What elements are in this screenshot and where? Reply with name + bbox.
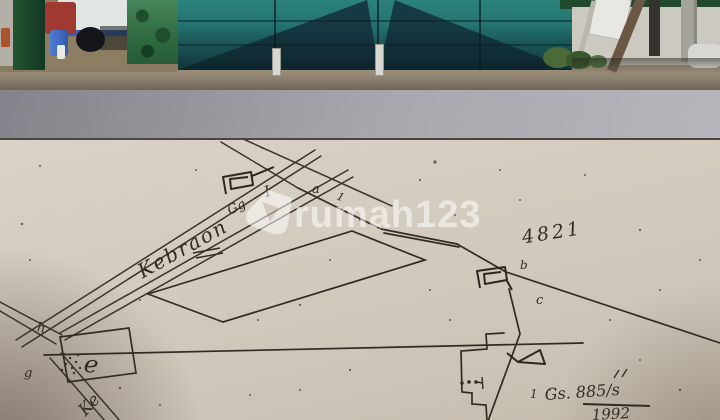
site-plan-drawing: Kebraon Gg I Ke a 1 b c e h g 4821 1 Gs.… — [0, 140, 720, 420]
listing-image: Kebraon Gg I Ke a 1 b c e h g 4821 1 Gs.… — [0, 0, 720, 420]
point-c: c — [536, 293, 544, 308]
dark-post — [649, 0, 660, 56]
survey-year: 1992 — [591, 404, 630, 420]
watermark-text: rumah123 — [294, 194, 482, 236]
gate-rail-top — [178, 20, 572, 22]
point-e: e — [82, 350, 100, 380]
street-photo — [0, 0, 720, 138]
dashed-tick — [461, 377, 483, 389]
ditto-marks — [614, 369, 627, 378]
truck-wheel — [76, 27, 105, 52]
gate-stop-post-1 — [272, 48, 281, 76]
watermark: rumah123 — [246, 190, 481, 236]
site-plan-scan: Kebraon Gg I Ke a 1 b c e h g 4821 1 Gs.… — [0, 138, 720, 420]
gate-post-left — [13, 0, 45, 70]
paper-specks — [21, 147, 701, 406]
parcel-number: 4821 — [520, 217, 584, 248]
gate-post-green — [127, 0, 178, 64]
survey-ref: Gs. 885/s — [544, 380, 620, 404]
ref-tick: 1 — [530, 387, 538, 401]
gate-seam-3 — [479, 0, 481, 70]
point-h: h — [36, 321, 47, 337]
white-jug — [57, 45, 65, 59]
orange-bucket — [1, 28, 10, 47]
asphalt-road — [0, 86, 720, 138]
wall-ground-shadow — [572, 58, 720, 73]
point-g: g — [24, 366, 32, 381]
point-b: b — [520, 258, 528, 272]
gate-stop-post-2 — [375, 44, 384, 76]
flag-marker-east — [477, 267, 512, 290]
